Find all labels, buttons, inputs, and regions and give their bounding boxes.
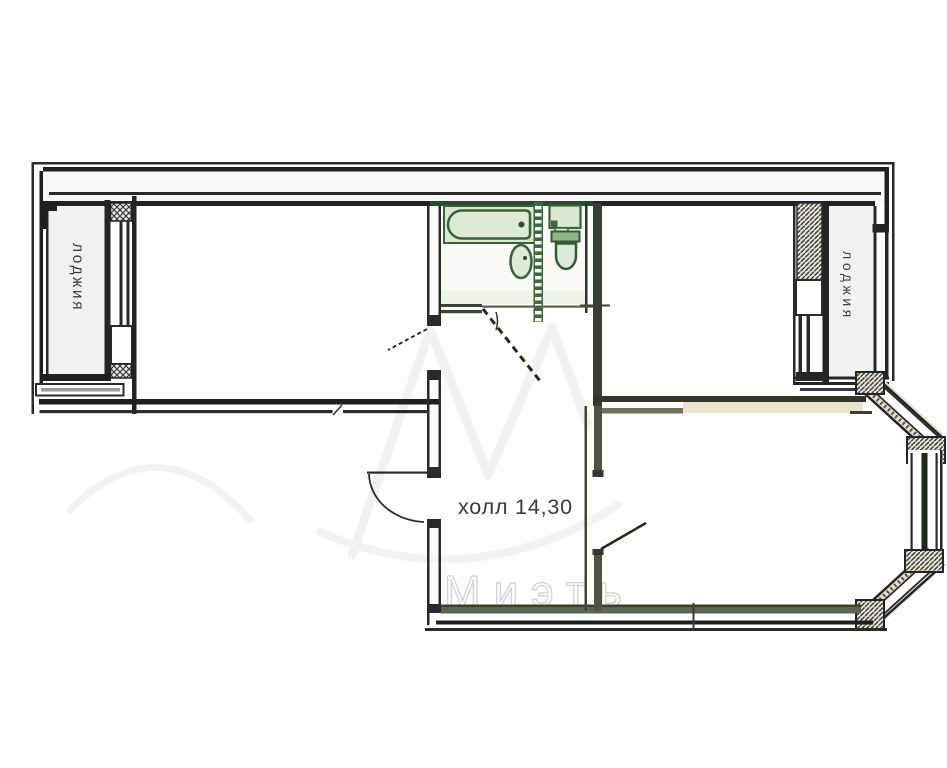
svg-text:лоджия: лоджия (840, 251, 856, 321)
svg-text:лоджия: лоджия (69, 243, 86, 312)
svg-text:холл 14,30: холл 14,30 (458, 495, 573, 519)
